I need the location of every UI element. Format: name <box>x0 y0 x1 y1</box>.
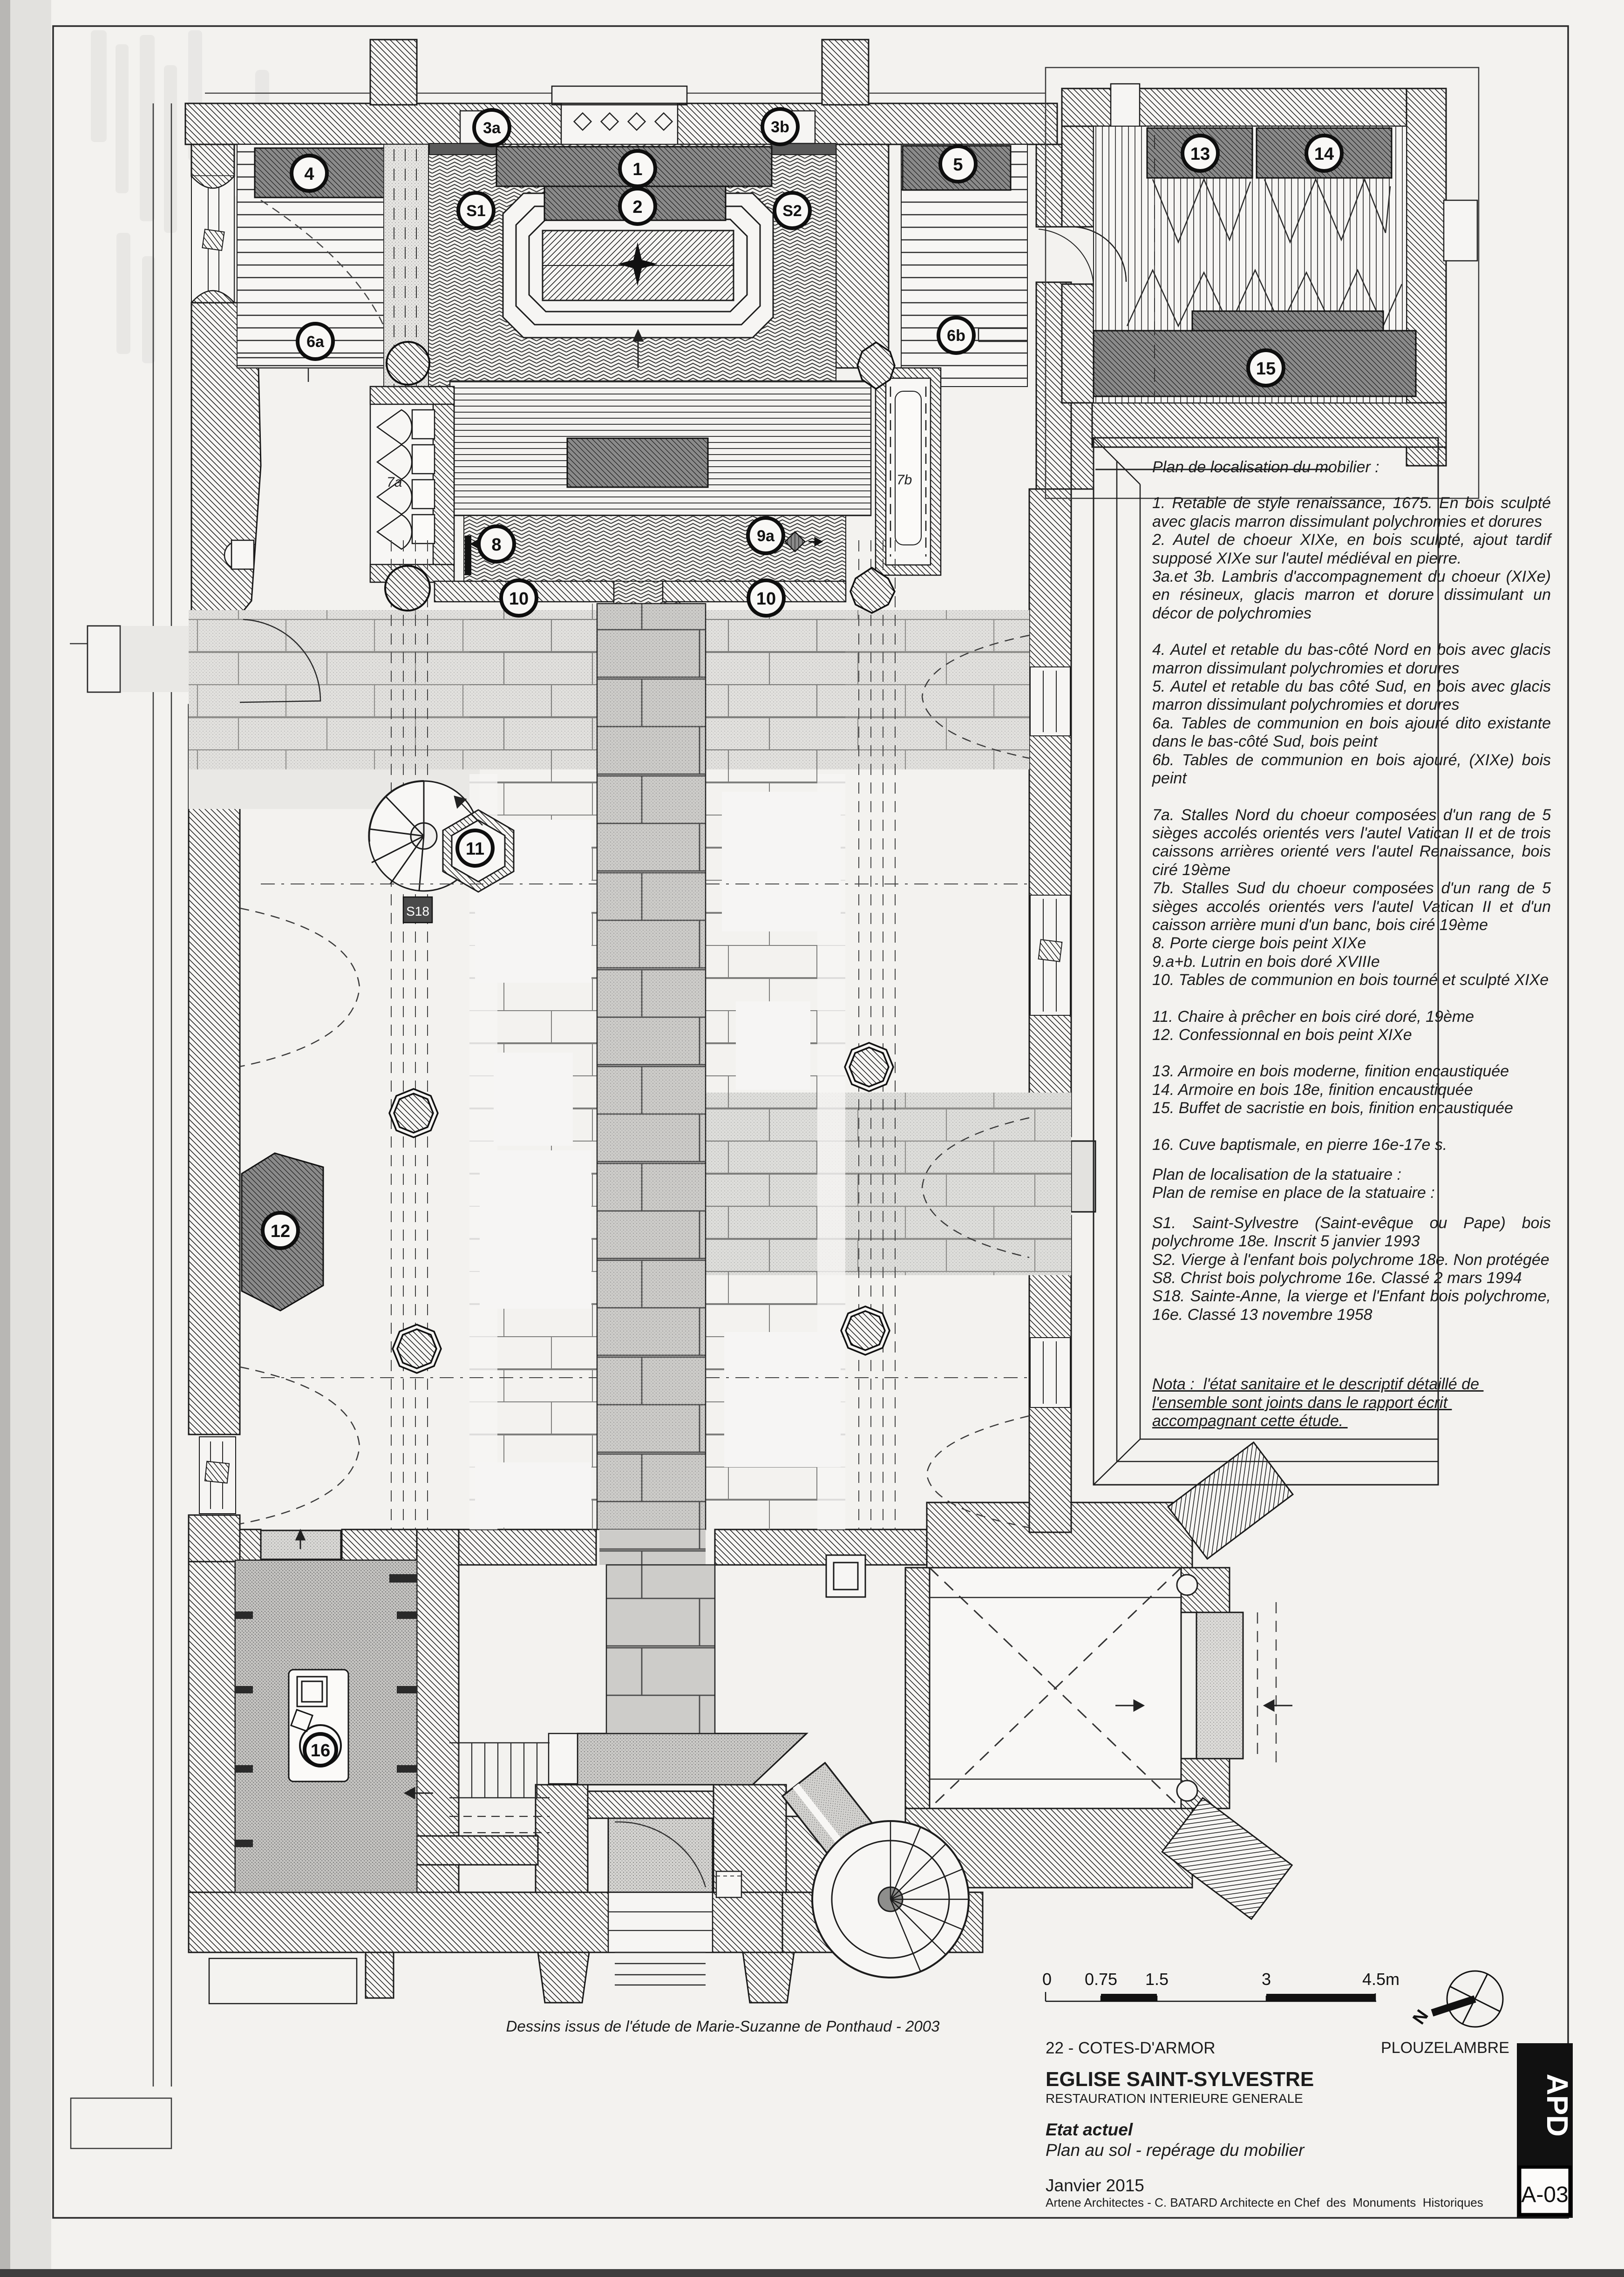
svg-text:10: 10 <box>756 589 776 609</box>
svg-text:15: 15 <box>1256 359 1276 379</box>
svg-text:1.5: 1.5 <box>1145 1970 1169 1989</box>
svg-text:13: 13 <box>1190 144 1210 164</box>
svg-text:3b: 3b <box>771 118 789 136</box>
svg-text:4: 4 <box>304 164 314 184</box>
svg-text:0: 0 <box>1042 1970 1052 1989</box>
svg-text:S18: S18 <box>406 904 429 918</box>
svg-text:S2: S2 <box>782 202 802 220</box>
svg-text:11: 11 <box>466 839 484 859</box>
svg-text:6a: 6a <box>306 333 325 351</box>
svg-text:3: 3 <box>1262 1970 1271 1989</box>
svg-text:9a: 9a <box>757 527 775 545</box>
svg-text:2: 2 <box>632 197 642 217</box>
svg-text:A-03: A-03 <box>1521 2182 1568 2207</box>
svg-text:1: 1 <box>632 160 642 179</box>
svg-text:3a: 3a <box>483 119 501 137</box>
svg-text:8: 8 <box>491 535 501 555</box>
svg-text:4.5m: 4.5m <box>1362 1970 1400 1989</box>
svg-text:14: 14 <box>1314 144 1334 164</box>
svg-text:7b: 7b <box>897 472 912 488</box>
svg-text:16: 16 <box>311 1741 330 1760</box>
svg-text:12: 12 <box>271 1222 290 1241</box>
svg-text:7a: 7a <box>387 475 402 490</box>
svg-text:6b: 6b <box>947 327 965 345</box>
svg-text:0.75: 0.75 <box>1085 1970 1117 1989</box>
svg-text:APD: APD <box>1541 2073 1574 2136</box>
svg-text:5: 5 <box>953 155 963 175</box>
svg-text:10: 10 <box>509 589 529 609</box>
svg-text:S1: S1 <box>466 202 486 220</box>
